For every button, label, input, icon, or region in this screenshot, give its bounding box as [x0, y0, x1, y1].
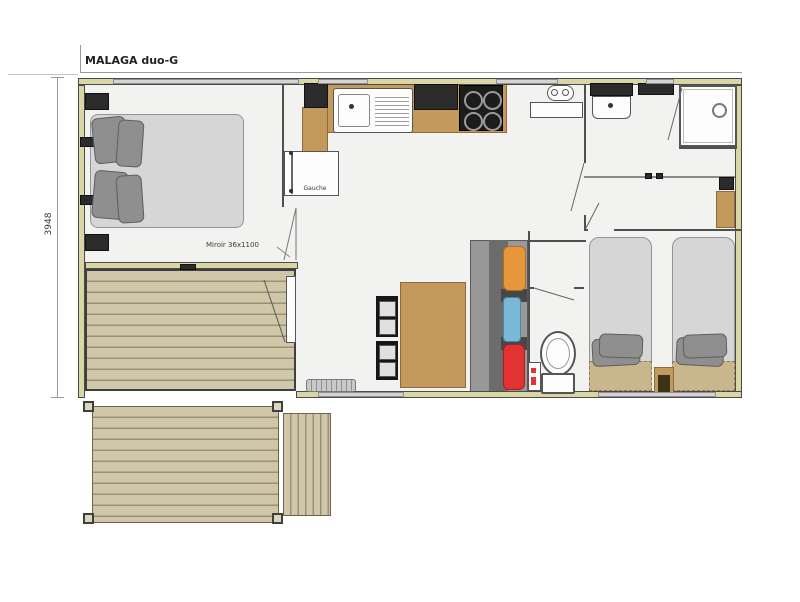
wall-cabinet-1 [85, 93, 109, 110]
wardrobe-door-line [291, 153, 293, 194]
door-threshold [180, 264, 196, 270]
cushion-red [503, 344, 525, 390]
sliding-door-handle-1 [645, 173, 652, 179]
pillow [115, 119, 144, 168]
partition-wc-top-right [574, 287, 584, 289]
shower-tray [683, 89, 733, 143]
partition-hall-top [528, 240, 586, 242]
partition-shower-front [679, 147, 737, 149]
deck-lower [92, 406, 279, 523]
height-dimension-label: 3948 [44, 204, 56, 244]
wardrobe-hinge-bottom [289, 189, 293, 193]
bench-seat-2 [376, 341, 398, 380]
bench-seat-1 [376, 296, 398, 337]
washbasin-drain [608, 103, 613, 108]
plan-title: MALAGA duo-G [85, 54, 178, 67]
bench-cushion [379, 319, 396, 335]
partition-wc-top-left [528, 287, 534, 289]
window-top-4 [646, 79, 674, 84]
partition-kitchen-bath-upper [584, 85, 586, 163]
dimension-tick-bottom [51, 397, 64, 398]
deck-post [83, 401, 94, 412]
bathroom-cabinet [638, 83, 674, 95]
wall-left [78, 85, 85, 398]
extension-line [8, 74, 78, 75]
window-top-3 [496, 79, 558, 84]
water-heater-dial [562, 89, 569, 96]
bench-cushion [379, 301, 396, 317]
water-heater-dial [551, 89, 558, 96]
deck-upper [85, 269, 296, 391]
wardrobe-door-label: Gauche [294, 185, 336, 192]
mirror-label: Miroir 36x1100 [206, 241, 259, 249]
sink-faucet [349, 104, 354, 109]
worktop-dark [414, 84, 458, 110]
hall-unit-shelf [716, 191, 735, 228]
window-bottom-2 [598, 392, 716, 397]
fridge [304, 83, 328, 108]
deck-post [83, 513, 94, 524]
toilet-cistern [541, 373, 575, 394]
hob-burner [483, 112, 502, 131]
hall-unit-dark [719, 177, 734, 190]
wall-cabinet-2 [85, 234, 109, 251]
pillow [683, 333, 728, 359]
toilet-bowl-inner [546, 338, 570, 369]
nightstand-item [658, 375, 670, 392]
deck-door-leaf [286, 276, 296, 343]
pillow [115, 174, 144, 224]
partition-bath-bedroom2 [614, 229, 742, 231]
cushion-blue [503, 297, 521, 342]
sliding-door-handle-2 [656, 173, 663, 179]
wc-accessory [531, 377, 536, 385]
gas-hob [459, 85, 503, 131]
cushion-orange [503, 246, 526, 291]
bench-cushion [379, 345, 396, 360]
hob-burner [483, 91, 502, 110]
wc-accessory [531, 368, 536, 373]
wardrobe-hinge-top [289, 151, 293, 155]
hob-burner [464, 91, 483, 110]
dining-table [400, 282, 466, 388]
dimension-line [57, 78, 58, 398]
sink-drainer [375, 94, 409, 127]
dimension-tick-top [51, 77, 64, 78]
sink-basin [338, 94, 370, 127]
bench-cushion [379, 362, 396, 377]
window-bottom-1 [318, 392, 404, 397]
deck-steps [283, 413, 331, 516]
end-shelf [530, 102, 583, 118]
radiator [306, 379, 356, 392]
hob-burner [464, 112, 483, 131]
kitchen-counter-return [302, 107, 328, 153]
deck-post [272, 401, 283, 412]
title-underline [80, 72, 742, 73]
washbasin-backsplash [590, 83, 633, 96]
window-top-1 [113, 79, 299, 84]
partition-bath-bedroom2-stub [584, 229, 588, 231]
floorplan-canvas: 3948 MALAGA duo-G Gauche Miroir 36x1100 [0, 0, 800, 602]
shower-drain [712, 103, 727, 118]
window-top-2 [318, 79, 368, 84]
deck-post [272, 513, 283, 524]
pillow [599, 333, 644, 359]
title-tick-line [80, 45, 81, 73]
